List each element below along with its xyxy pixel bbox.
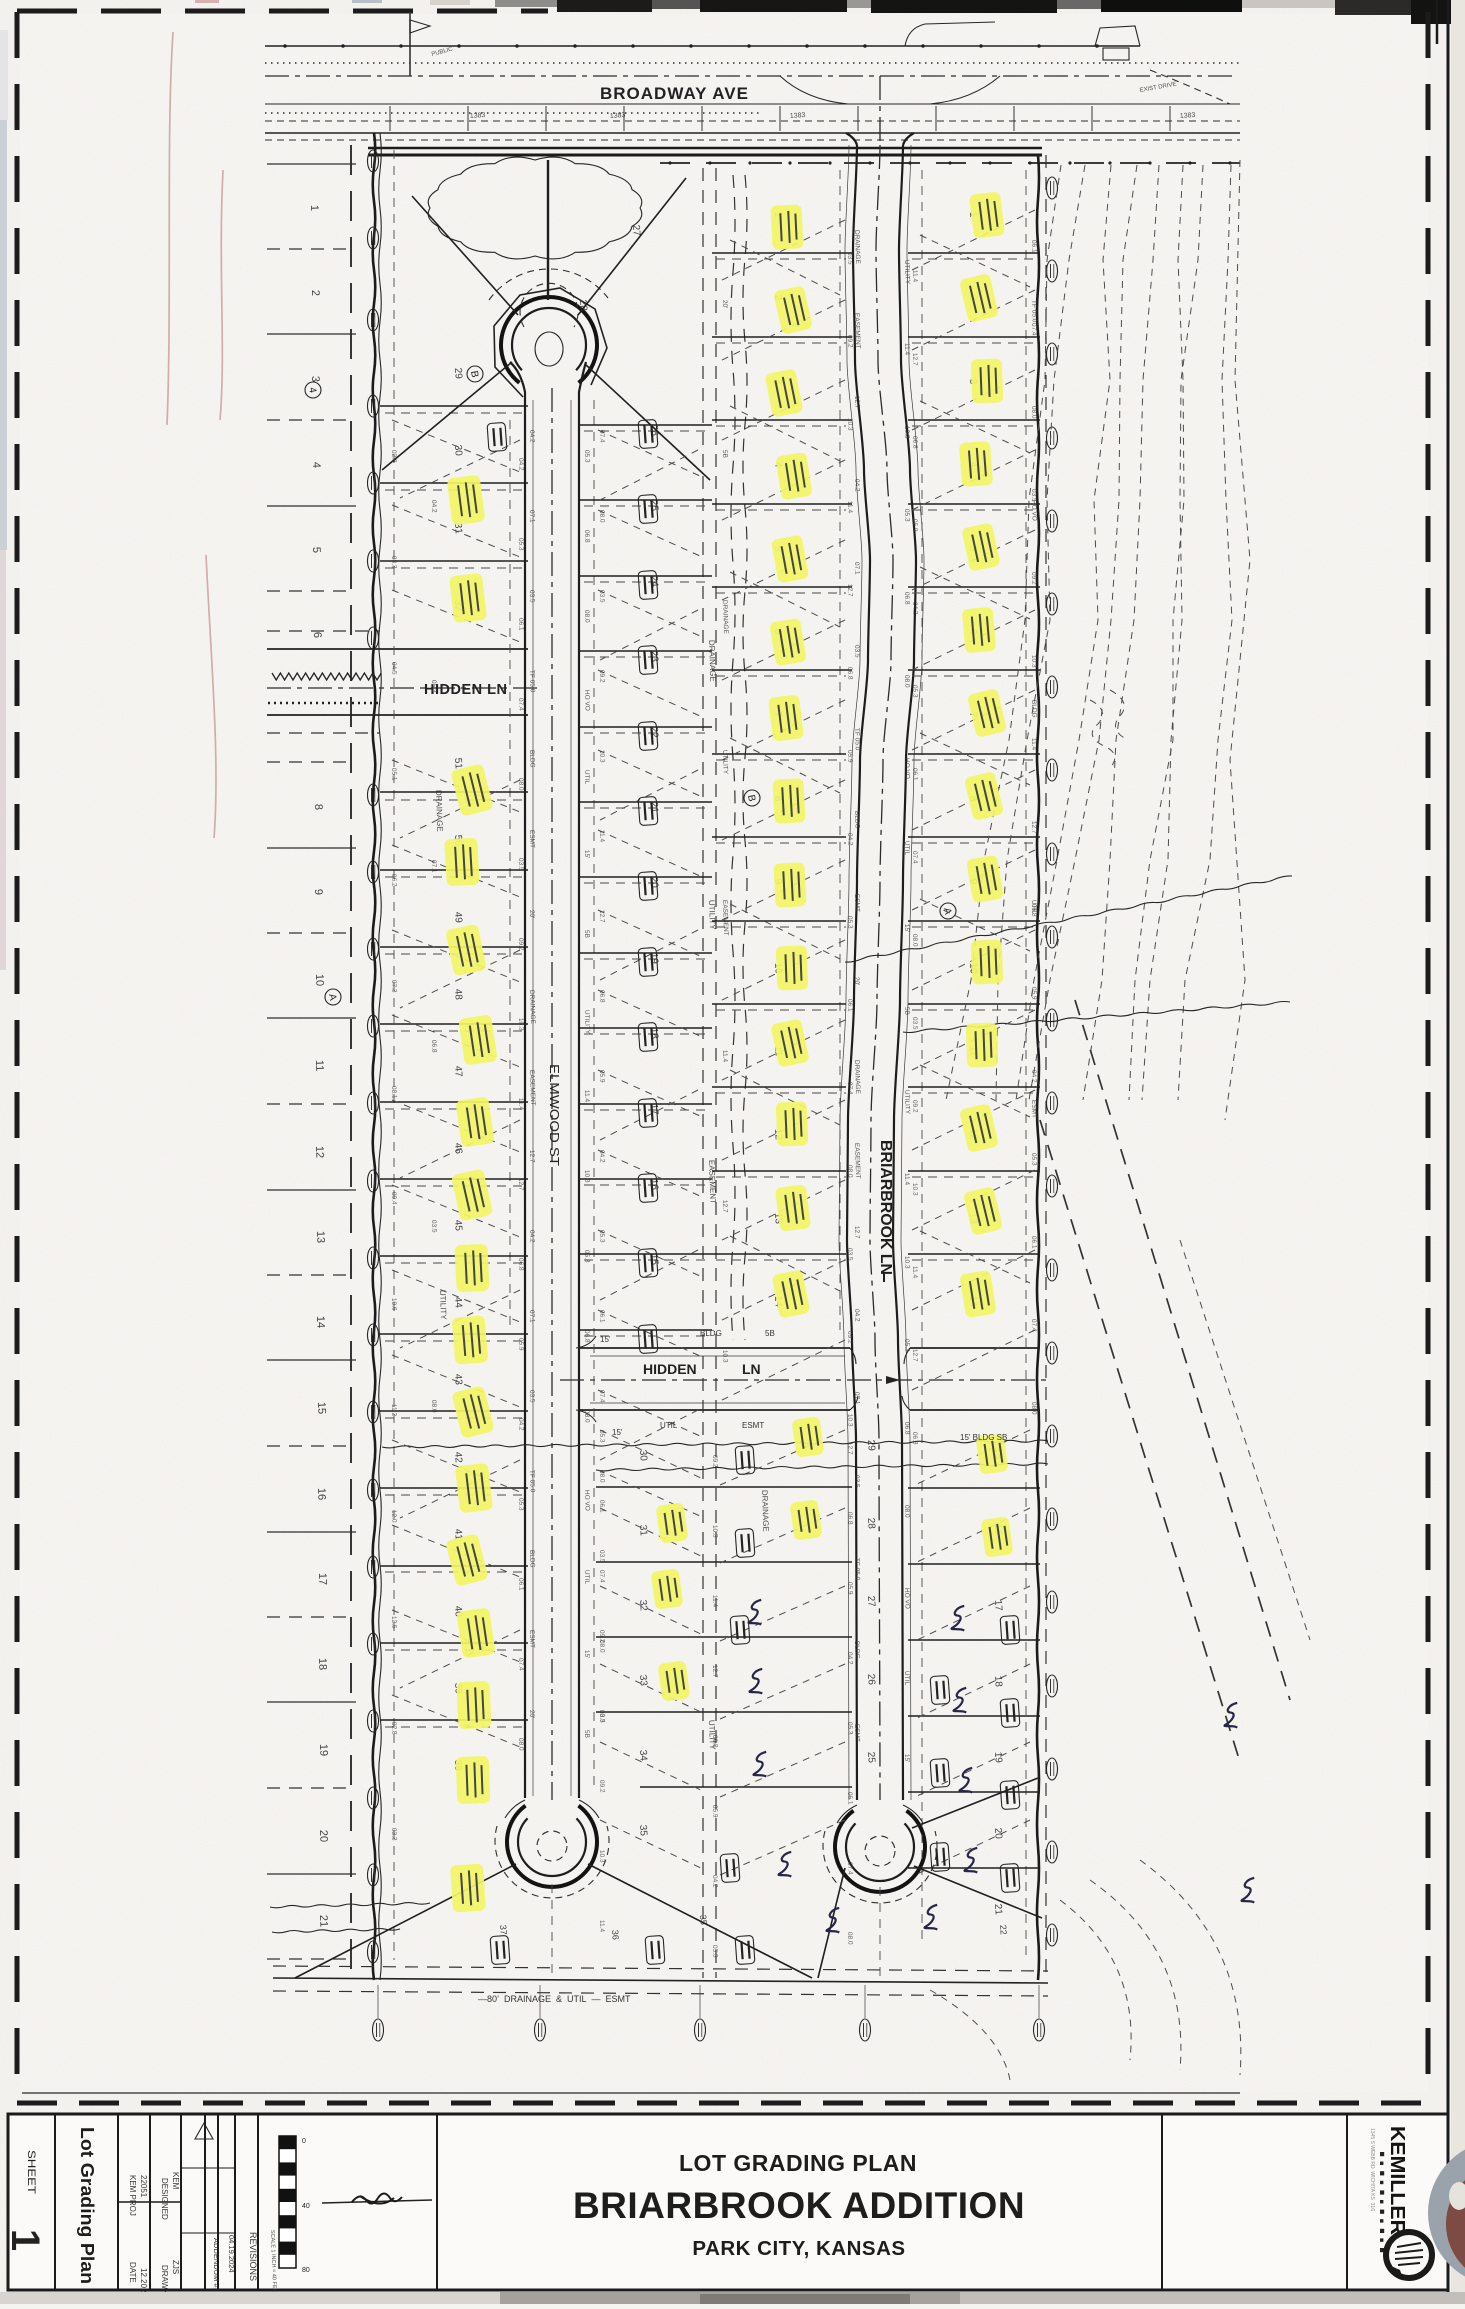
svg-text:03.5: 03.5: [846, 1248, 853, 1261]
svg-text:9: 9: [312, 889, 324, 896]
svg-text:EASEMENT: EASEMENT: [721, 900, 729, 936]
svg-text:03.5: 03.5: [911, 1017, 918, 1030]
svg-text:23: 23: [648, 650, 660, 662]
svg-text:05.9: 05.9: [846, 1582, 853, 1595]
svg-text:07.4: 07.4: [1030, 1319, 1037, 1332]
svg-text:11.4: 11.4: [903, 343, 910, 356]
svg-text:05.3: 05.3: [711, 1945, 718, 1958]
svg-text:TF 05.0: TF 05.0: [853, 1558, 861, 1581]
svg-text:08.0: 08.0: [903, 1505, 910, 1518]
svg-text:09.2: 09.2: [911, 1100, 918, 1113]
svg-text:5: 5: [310, 547, 322, 554]
svg-text:06.8: 06.8: [903, 1422, 910, 1435]
svg-text:08.0: 08.0: [911, 934, 918, 947]
svg-text:21: 21: [648, 801, 660, 813]
svg-text:29: 29: [452, 367, 464, 379]
svg-text:10.3: 10.3: [517, 1018, 524, 1031]
svg-text:05.3: 05.3: [911, 685, 918, 698]
svg-text:09.4: 09.4: [390, 1192, 397, 1205]
svg-text:DRAINAGE: DRAINAGE: [721, 600, 729, 635]
svg-text:03.5: 03.5: [853, 645, 860, 658]
svg-text:03.3: 03.3: [390, 1828, 397, 1841]
svg-text:44: 44: [452, 1296, 464, 1308]
svg-text:UTILITY: UTILITY: [707, 900, 717, 931]
svg-text:10.3: 10.3: [598, 1850, 605, 1863]
svg-text:35: 35: [637, 1824, 649, 1836]
svg-text:05.9: 05.9: [598, 1070, 605, 1083]
svg-text:UTIL: UTIL: [903, 1671, 911, 1686]
svg-text:07.4: 07.4: [911, 851, 918, 864]
svg-text:EASEMENT: EASEMENT: [528, 1070, 536, 1106]
svg-text:17: 17: [648, 1103, 660, 1115]
svg-text:05.9: 05.9: [911, 519, 918, 532]
svg-text:UTILITY: UTILITY: [903, 260, 911, 285]
svg-text:19: 19: [992, 1751, 1004, 1763]
svg-text:4: 4: [310, 462, 322, 469]
svg-text:06.1: 06.1: [846, 1792, 853, 1805]
svg-text:12.7: 12.7: [911, 1349, 918, 1362]
svg-text:06.1: 06.1: [517, 1578, 524, 1591]
svg-text:12.7: 12.7: [598, 910, 605, 923]
svg-text:04.2: 04.2: [430, 500, 437, 513]
svg-text:11.4: 11.4: [598, 830, 605, 843]
svg-text:10.3: 10.3: [598, 750, 605, 763]
svg-text:08.0: 08.0: [598, 510, 605, 523]
svg-text:80: 80: [302, 2267, 310, 2274]
svg-text:15': 15': [600, 1335, 611, 1344]
svg-text:04.2: 04.2: [528, 1230, 535, 1243]
svg-text:TF 05.0: TF 05.0: [1030, 300, 1038, 323]
svg-text:BLDG: BLDG: [853, 811, 861, 829]
svg-text:05.3: 05.3: [430, 680, 437, 693]
svg-text:06.8: 06.8: [903, 592, 910, 605]
svg-text:08.1: 08.1: [390, 1086, 397, 1099]
svg-text:LN: LN: [742, 1361, 761, 1377]
svg-text:03.5: 03.5: [598, 1710, 605, 1723]
svg-text:04.19.2024: 04.19.2024: [227, 2235, 236, 2273]
svg-text:03.5: 03.5: [853, 1475, 860, 1488]
svg-text:06.8: 06.8: [583, 530, 590, 543]
svg-text:11.4: 11.4: [583, 1090, 590, 1103]
svg-text:ZJS: ZJS: [171, 2260, 180, 2274]
svg-text:04.2: 04.2: [517, 1418, 524, 1431]
svg-text:29: 29: [865, 1439, 877, 1451]
svg-text:09.2: 09.2: [1030, 572, 1037, 585]
svg-text:10.3: 10.3: [721, 1350, 728, 1363]
svg-text:02.8: 02.8: [390, 1722, 397, 1735]
svg-text:06.1: 06.1: [1030, 240, 1037, 253]
svg-text:08.0: 08.0: [846, 1932, 853, 1945]
svg-text:07.1: 07.1: [430, 860, 437, 873]
svg-text:10.3: 10.3: [903, 1256, 910, 1269]
svg-text:05.1: 05.1: [390, 768, 397, 781]
svg-text:19: 19: [317, 1744, 329, 1757]
svg-text:33: 33: [637, 1674, 649, 1686]
svg-text:UTIL: UTIL: [903, 841, 911, 856]
svg-text:11.4: 11.4: [846, 501, 853, 514]
svg-text:UTILITY: UTILITY: [721, 750, 729, 775]
svg-text:BRIARBROOK LN: BRIARBROOK LN: [877, 1140, 894, 1275]
svg-text:5B: 5B: [721, 450, 728, 458]
svg-text:06.8: 06.8: [1030, 904, 1037, 917]
svg-text:EASEMENT: EASEMENT: [707, 1160, 718, 1204]
svg-text:15': 15': [612, 1428, 623, 1437]
svg-text:09.2: 09.2: [846, 335, 853, 348]
svg-text:15: 15: [315, 1402, 327, 1415]
svg-text:PARK CITY, KANSAS: PARK CITY, KANSAS: [692, 2237, 905, 2260]
svg-text:45: 45: [452, 1219, 464, 1231]
svg-text:20': 20': [528, 1710, 535, 1719]
svg-text:05.3: 05.3: [1030, 1153, 1037, 1166]
svg-text:5B: 5B: [765, 1329, 775, 1338]
svg-text:1345 S WEBB RD WICHITA KS 31: 1345 S WEBB RD WICHITA KS 316: [1369, 2128, 1375, 2211]
svg-text:ESMT: ESMT: [1030, 1100, 1038, 1118]
svg-text:HIDDEN: HIDDEN: [643, 1361, 697, 1377]
svg-text:15': 15': [903, 924, 910, 933]
svg-text:10: 10: [313, 974, 325, 987]
svg-text:08.0: 08.0: [430, 1400, 437, 1413]
svg-text:11.4: 11.4: [711, 1595, 718, 1608]
svg-text:12.7: 12.7: [528, 1150, 535, 1163]
svg-text:DRAWN: DRAWN: [160, 2265, 169, 2295]
svg-text:04.2: 04.2: [853, 1309, 860, 1322]
svg-text:04.2: 04.2: [598, 1150, 605, 1163]
svg-text:11.2: 11.2: [390, 1404, 397, 1417]
svg-text:21: 21: [317, 1915, 329, 1928]
svg-text:BLDG: BLDG: [528, 1550, 536, 1568]
svg-text:28: 28: [865, 1517, 877, 1529]
svg-text:06.8: 06.8: [911, 436, 918, 449]
svg-text:ESMT: ESMT: [528, 830, 536, 848]
svg-text:UTIL: UTIL: [660, 1421, 678, 1430]
svg-text:04.2: 04.2: [1030, 1070, 1037, 1083]
svg-text:ESMT: ESMT: [853, 894, 861, 912]
svg-text:DRAINAGE: DRAINAGE: [434, 790, 444, 832]
svg-text:08.0: 08.0: [583, 610, 590, 623]
svg-text:06.2: 06.2: [390, 874, 397, 887]
svg-text:09.2: 09.2: [517, 938, 524, 951]
svg-text:07.4: 07.4: [1030, 323, 1037, 336]
svg-text:BLDG: BLDG: [1030, 700, 1038, 718]
svg-text:BRIARBROOK ADDITION: BRIARBROOK ADDITION: [573, 2185, 1025, 2226]
svg-text:04.2: 04.2: [517, 458, 524, 471]
svg-text:08.0: 08.0: [598, 1640, 605, 1653]
svg-text:05.3: 05.3: [598, 1430, 605, 1443]
svg-text:22051: 22051: [139, 2175, 148, 2198]
svg-text:21: 21: [992, 1903, 1004, 1915]
svg-text:LOT GRADING PLAN: LOT GRADING PLAN: [679, 2150, 917, 2176]
svg-text:15' BLDG SB: 15' BLDG SB: [960, 1433, 1007, 1442]
svg-text:15': 15': [903, 1754, 910, 1763]
svg-text:SHEET: SHEET: [25, 2150, 37, 2194]
svg-text:05.3: 05.3: [517, 1498, 524, 1511]
svg-text:Lot Grading Plan: Lot Grading Plan: [77, 2127, 97, 2284]
svg-text:06.1: 06.1: [517, 618, 524, 631]
svg-text:05.3: 05.3: [598, 1230, 605, 1243]
svg-text:12.7: 12.7: [721, 1200, 728, 1213]
svg-text:16: 16: [315, 1488, 327, 1501]
svg-text:DESIGNED: DESIGNED: [160, 2178, 169, 2220]
svg-text:07.1: 07.1: [528, 510, 535, 523]
svg-text:42: 42: [452, 1451, 464, 1463]
svg-text:06.1: 06.1: [598, 1310, 605, 1323]
svg-text:1383: 1383: [470, 112, 486, 120]
svg-text:ESMT: ESMT: [528, 1630, 536, 1648]
svg-text:10.3: 10.3: [583, 1170, 590, 1183]
svg-text:HO VO: HO VO: [583, 690, 591, 711]
svg-text:5B: 5B: [583, 930, 590, 938]
svg-text:03.5: 03.5: [846, 252, 853, 265]
svg-text:05.3: 05.3: [846, 916, 853, 929]
svg-text:1: 1: [308, 205, 320, 212]
svg-text:KEM PROJ: KEM PROJ: [128, 2175, 137, 2216]
svg-text:04.5: 04.5: [390, 662, 397, 675]
svg-text:11.4: 11.4: [517, 1098, 524, 1111]
svg-text:05.9: 05.9: [711, 1805, 718, 1818]
svg-text:05.3: 05.3: [583, 450, 590, 463]
svg-text:08.0: 08.0: [903, 675, 910, 688]
svg-text:30: 30: [637, 1449, 649, 1461]
svg-text:06.1: 06.1: [598, 1500, 605, 1513]
svg-text:04.2: 04.2: [846, 1652, 853, 1665]
svg-text:04.2: 04.2: [853, 479, 860, 492]
svg-text:10.3: 10.3: [911, 1183, 918, 1196]
svg-text:REVISIONS: REVISIONS: [248, 2232, 258, 2281]
svg-text:15': 15': [583, 1650, 590, 1659]
svg-text:05.9: 05.9: [846, 750, 853, 763]
svg-text:BLDG: BLDG: [853, 1641, 861, 1659]
svg-text:06.8: 06.8: [430, 1040, 437, 1053]
svg-text:15: 15: [648, 1253, 660, 1265]
svg-text:UTIL: UTIL: [583, 1570, 591, 1585]
svg-text:06.1: 06.1: [911, 768, 918, 781]
svg-text:05.3: 05.3: [903, 509, 910, 522]
svg-text:06.8: 06.8: [711, 1735, 718, 1748]
svg-text:15': 15': [583, 850, 590, 859]
svg-text:17: 17: [316, 1573, 328, 1586]
svg-text:5B: 5B: [583, 1730, 590, 1738]
svg-text:06.8: 06.8: [911, 1432, 918, 1445]
svg-text:40: 40: [302, 2203, 310, 2210]
svg-text:DATE: DATE: [128, 2262, 137, 2283]
svg-text:TF 05.0: TF 05.0: [528, 670, 536, 693]
svg-text:22: 22: [998, 1924, 1009, 1935]
svg-text:ESMT: ESMT: [742, 1421, 764, 1430]
svg-text:12.0: 12.0: [390, 1510, 397, 1523]
svg-text:22: 22: [648, 726, 660, 738]
svg-text:10.3: 10.3: [1030, 655, 1037, 668]
svg-text:07.3: 07.3: [390, 980, 397, 993]
svg-text:08.0: 08.0: [846, 1165, 853, 1178]
svg-text:11.4: 11.4: [911, 270, 918, 283]
svg-text:07.4: 07.4: [517, 1658, 524, 1671]
svg-text:6: 6: [311, 632, 323, 639]
svg-text:49: 49: [452, 911, 464, 923]
svg-text:20: 20: [317, 1830, 329, 1843]
svg-text:04.2: 04.2: [711, 1875, 718, 1888]
svg-text:0: 0: [302, 2138, 306, 2145]
svg-text:1383: 1383: [610, 112, 626, 120]
svg-text:1: 1: [3, 2229, 47, 2251]
svg-text:09.2: 09.2: [598, 1780, 605, 1793]
svg-text:12.7: 12.7: [853, 396, 860, 409]
svg-text:05.3: 05.3: [583, 1250, 590, 1263]
svg-text:KEMILLER: KEMILLER: [1386, 2126, 1408, 2236]
svg-text:12.7: 12.7: [517, 1178, 524, 1191]
svg-text:13: 13: [314, 1231, 326, 1244]
svg-text:03.5: 03.5: [528, 590, 535, 603]
svg-text:12.5: 12.5: [390, 1616, 397, 1629]
svg-text:10.3: 10.3: [846, 418, 853, 431]
svg-text:08.0: 08.0: [583, 1410, 590, 1423]
svg-text:03.3: 03.3: [390, 556, 397, 569]
svg-text:UTILITY: UTILITY: [583, 1010, 591, 1035]
svg-text:03.5: 03.5: [430, 1220, 437, 1233]
svg-text:07.4: 07.4: [598, 1570, 605, 1583]
svg-text:DRAINAGE: DRAINAGE: [528, 990, 536, 1025]
svg-text:06.8: 06.8: [598, 990, 605, 1003]
svg-text:UTILITY: UTILITY: [903, 1090, 911, 1115]
svg-text:12.7: 12.7: [846, 584, 853, 597]
svg-text:12.7: 12.7: [846, 1442, 853, 1455]
svg-text:07.4: 07.4: [598, 1390, 605, 1403]
svg-text:20': 20': [528, 910, 535, 919]
svg-text:03.5: 03.5: [517, 858, 524, 871]
svg-text:04.2: 04.2: [911, 602, 918, 615]
svg-text:UTIL: UTIL: [583, 770, 591, 785]
svg-text:24: 24: [648, 575, 660, 587]
svg-text:04.2: 04.2: [528, 430, 535, 443]
svg-text:51: 51: [452, 757, 464, 769]
svg-text:10.3: 10.3: [903, 426, 910, 439]
svg-text:02.8: 02.8: [390, 450, 397, 463]
svg-text:07.1: 07.1: [853, 1392, 860, 1405]
svg-text:05.3: 05.3: [903, 1339, 910, 1352]
svg-text:09.2: 09.2: [711, 1455, 718, 1468]
svg-text:1383: 1383: [1180, 112, 1196, 120]
svg-text:09.2: 09.2: [846, 1331, 853, 1344]
svg-text:03.5: 03.5: [1030, 489, 1037, 502]
svg-text:HO VO: HO VO: [1030, 500, 1038, 521]
svg-text:HO VO: HO VO: [583, 1490, 591, 1511]
svg-text:11.4: 11.4: [1030, 738, 1037, 751]
svg-text:11.4: 11.4: [903, 1173, 910, 1186]
svg-text:37: 37: [498, 1924, 509, 1935]
svg-text:12.7: 12.7: [1030, 821, 1037, 834]
svg-text:1383: 1383: [790, 112, 806, 120]
svg-text:12.7: 12.7: [853, 1226, 860, 1239]
svg-text:08.0: 08.0: [1030, 406, 1037, 419]
svg-text:07.1: 07.1: [853, 562, 860, 575]
svg-text:2: 2: [309, 290, 321, 297]
svg-text:ADDENDUM #1: ADDENDUM #1: [212, 2238, 221, 2292]
svg-text:18: 18: [316, 1658, 328, 1671]
svg-text:08.0: 08.0: [598, 1470, 605, 1483]
svg-text:10.3: 10.3: [846, 1414, 853, 1427]
svg-text:05.3: 05.3: [517, 538, 524, 551]
svg-text:HO VO: HO VO: [903, 1588, 911, 1609]
svg-text:10.3: 10.3: [711, 1525, 718, 1538]
svg-text:11.4: 11.4: [598, 1920, 605, 1933]
svg-text:03.5: 03.5: [598, 1550, 605, 1563]
svg-text:06.8: 06.8: [846, 667, 853, 680]
svg-text:06.8: 06.8: [583, 1330, 590, 1343]
svg-text:10.6: 10.6: [390, 1298, 397, 1311]
svg-text:06.1: 06.1: [846, 999, 853, 1012]
svg-text:TF 05.0: TF 05.0: [853, 728, 861, 751]
svg-text:25: 25: [865, 1751, 877, 1763]
svg-text:BLDG: BLDG: [700, 1329, 722, 1338]
svg-text:11.4: 11.4: [911, 1266, 918, 1279]
svg-text:35: 35: [698, 1914, 709, 1925]
svg-text:03.5: 03.5: [598, 590, 605, 603]
svg-text:16: 16: [648, 1178, 660, 1190]
svg-text:46: 46: [452, 1142, 464, 1154]
svg-text:05.9: 05.9: [1030, 987, 1037, 1000]
svg-text:18: 18: [648, 1027, 660, 1039]
svg-text:DRAINAGE: DRAINAGE: [760, 1490, 770, 1532]
svg-text:KEM: KEM: [171, 2172, 180, 2190]
svg-text:47: 47: [452, 1065, 464, 1077]
svg-text:17: 17: [992, 1599, 1004, 1611]
svg-text:07.4: 07.4: [846, 1862, 853, 1875]
svg-text:14: 14: [314, 1316, 326, 1329]
svg-text:08.0: 08.0: [517, 1738, 524, 1751]
svg-text:08.0: 08.0: [517, 778, 524, 791]
svg-text:DRAINAGE: DRAINAGE: [707, 640, 717, 682]
svg-text:08.0: 08.0: [1030, 1402, 1037, 1415]
svg-text:20': 20': [853, 977, 860, 986]
svg-text:07.4: 07.4: [517, 698, 524, 711]
svg-text:3: 3: [309, 376, 321, 383]
svg-text:48: 48: [452, 988, 464, 1000]
svg-text:34: 34: [637, 1749, 649, 1761]
svg-text:UTILITY: UTILITY: [438, 1290, 448, 1321]
svg-text:36: 36: [610, 1929, 621, 1940]
svg-text:ELMWOOD ST: ELMWOOD ST: [547, 1064, 562, 1166]
svg-text:06.1: 06.1: [1030, 1236, 1037, 1249]
svg-text:12.7: 12.7: [711, 1665, 718, 1678]
svg-text:12.7: 12.7: [911, 353, 918, 366]
svg-text:20: 20: [648, 876, 660, 888]
svg-text:32: 32: [637, 1599, 649, 1611]
svg-text:07.1: 07.1: [528, 1310, 535, 1323]
svg-text:8: 8: [312, 804, 324, 811]
svg-text:HO VO: HO VO: [903, 758, 911, 779]
svg-text:07.4: 07.4: [846, 1082, 853, 1095]
svg-text:BROADWAY AVE: BROADWAY AVE: [600, 84, 749, 103]
svg-text:11.4: 11.4: [721, 1050, 728, 1063]
svg-text:05.3: 05.3: [846, 1722, 853, 1735]
svg-text:04.2: 04.2: [846, 833, 853, 846]
svg-text:5B: 5B: [903, 1007, 910, 1015]
svg-text:26: 26: [648, 424, 660, 436]
svg-text:09.2: 09.2: [598, 670, 605, 683]
svg-text:11: 11: [313, 1060, 325, 1072]
svg-text:27: 27: [865, 1595, 877, 1607]
svg-text:BLDG: BLDG: [528, 750, 536, 768]
svg-text:06.8: 06.8: [517, 1258, 524, 1271]
svg-text:26: 26: [865, 1673, 877, 1685]
svg-text:TF 05.0: TF 05.0: [528, 1470, 536, 1493]
svg-text:—80’ DRAINAGE & UTIL — ES: —80’ DRAINAGE & UTIL — ESMT: [478, 1994, 631, 2004]
svg-text:25: 25: [648, 499, 660, 511]
svg-text:20': 20': [721, 300, 728, 309]
svg-text:05.9: 05.9: [517, 1338, 524, 1351]
svg-text:12: 12: [313, 1146, 325, 1159]
svg-text:03.5: 03.5: [528, 1390, 535, 1403]
svg-text:07.4: 07.4: [598, 430, 605, 443]
